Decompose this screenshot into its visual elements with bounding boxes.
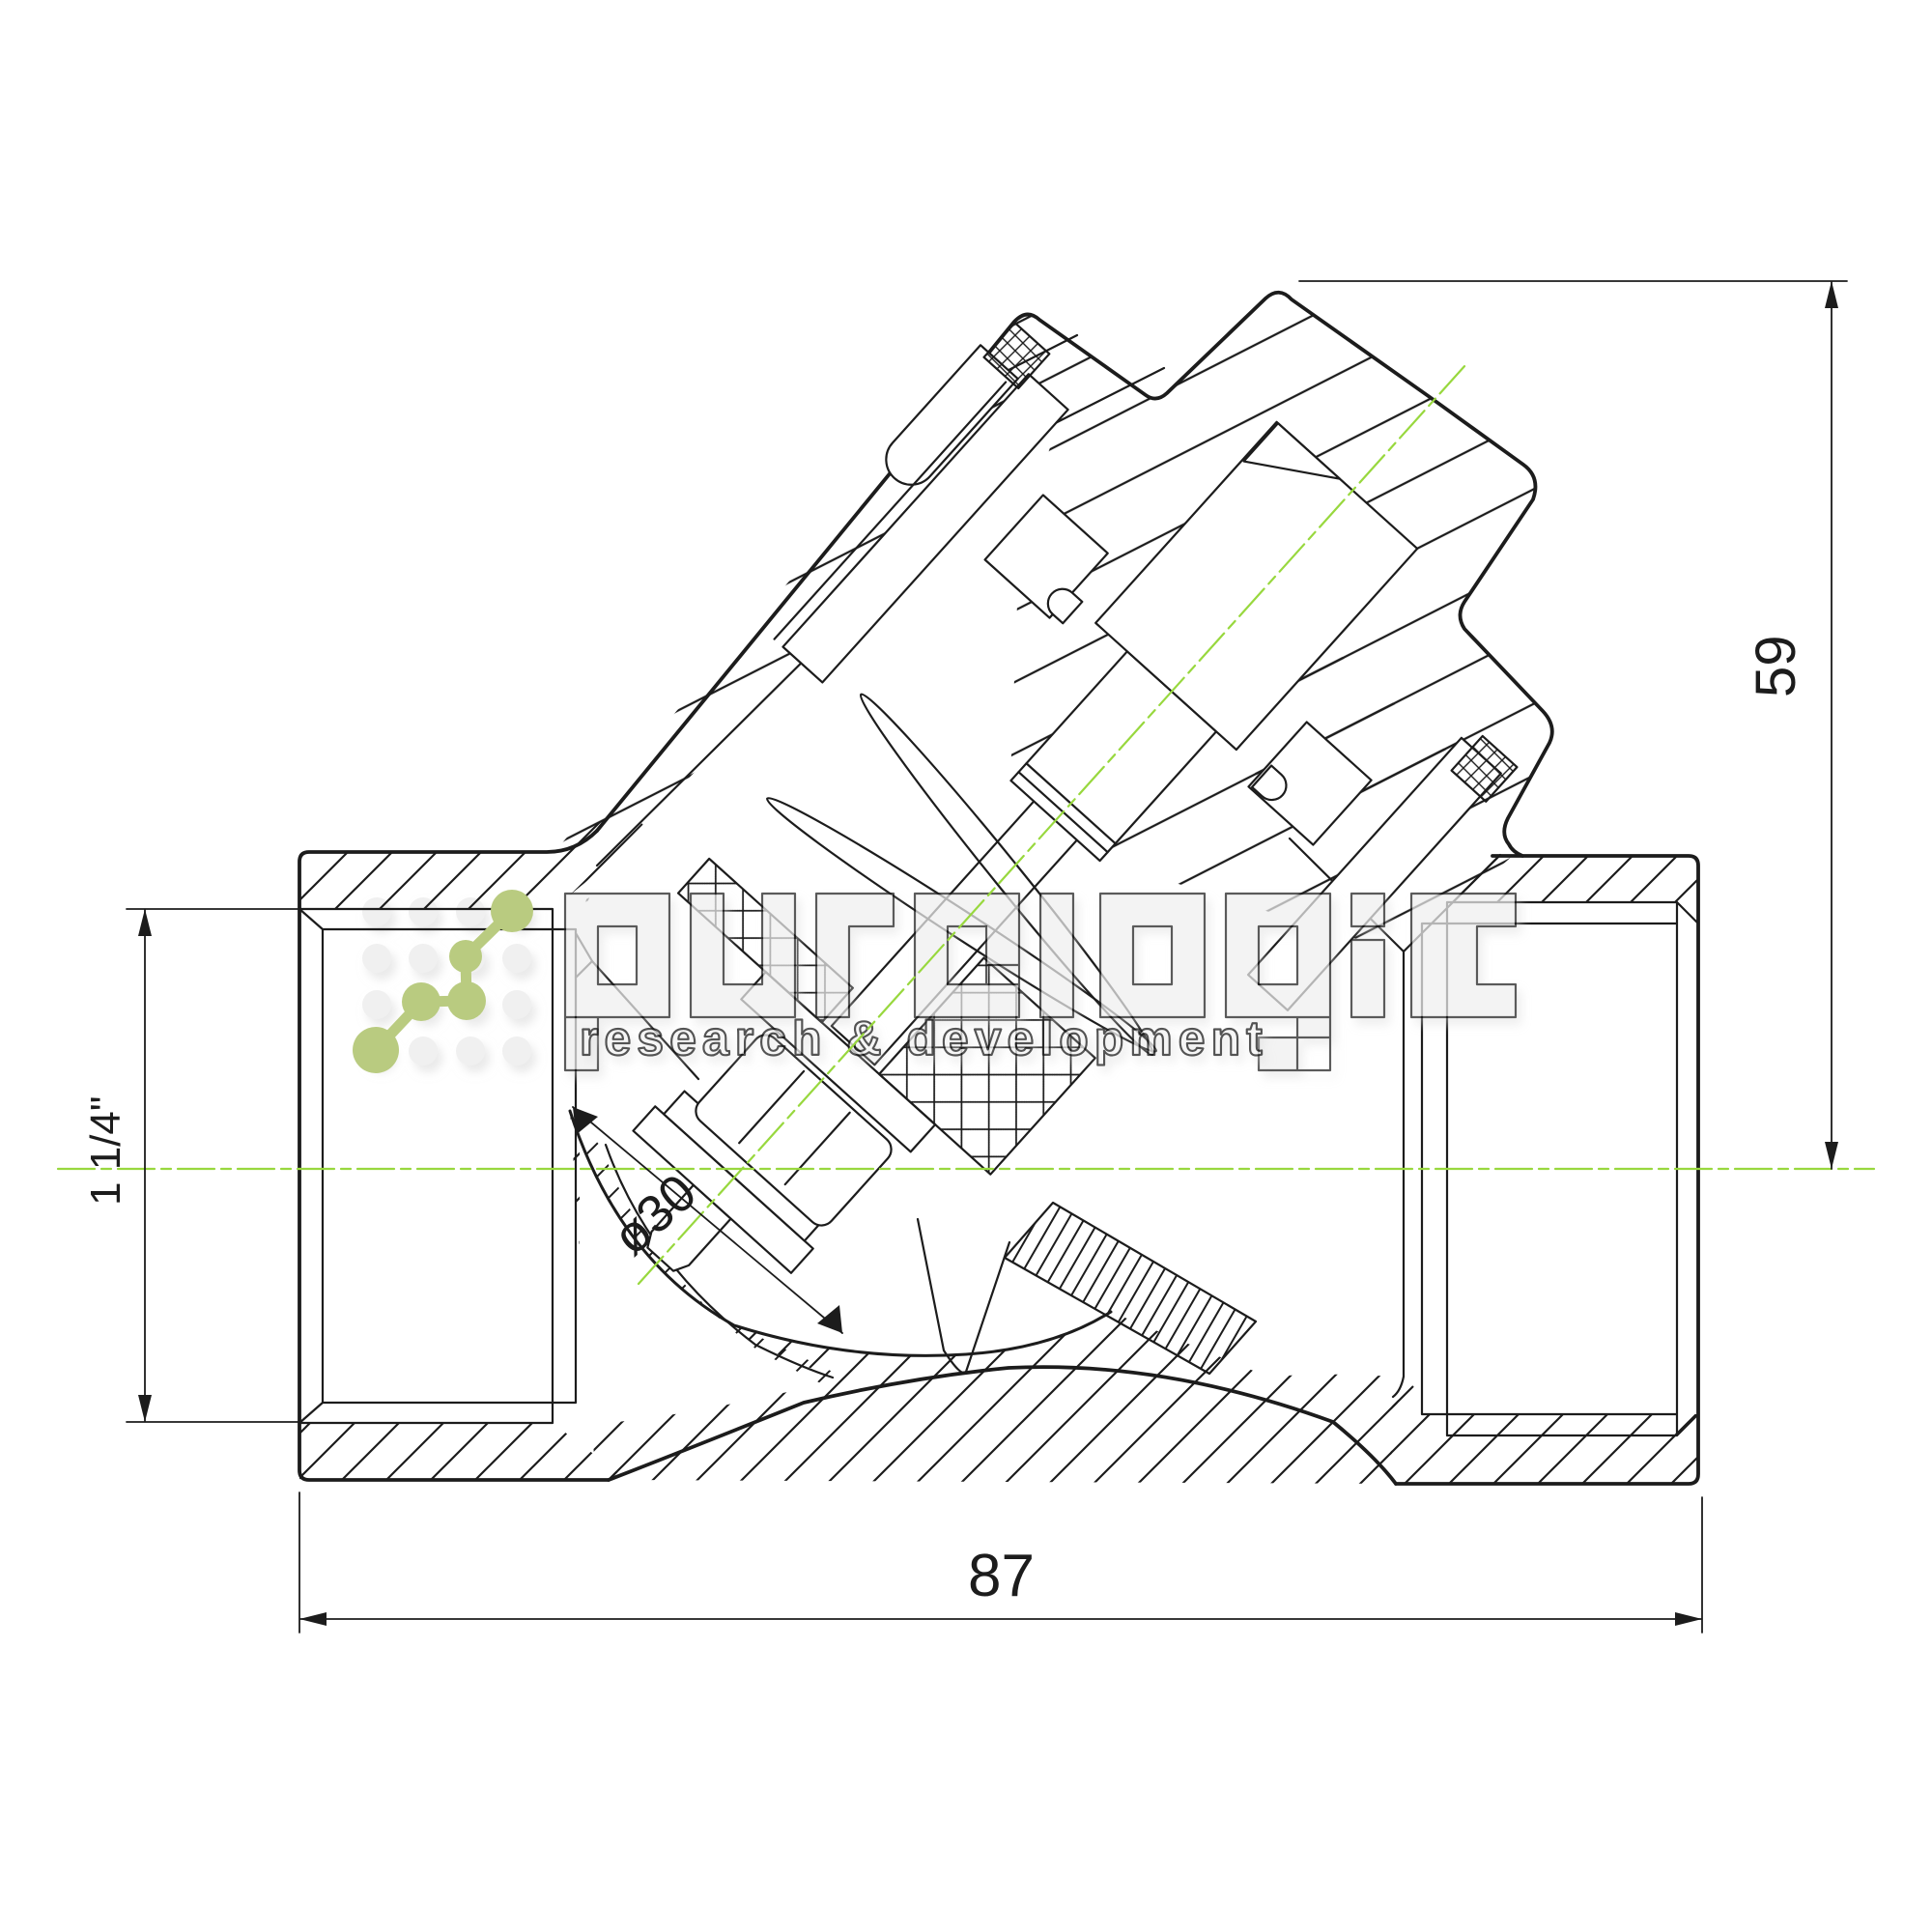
svg-text:87: 87 [968,1543,1035,1609]
svg-text:research & development: research & development [580,1011,1268,1065]
svg-text:1 1/4": 1 1/4" [82,1096,129,1206]
svg-text:59: 59 [1745,635,1807,697]
